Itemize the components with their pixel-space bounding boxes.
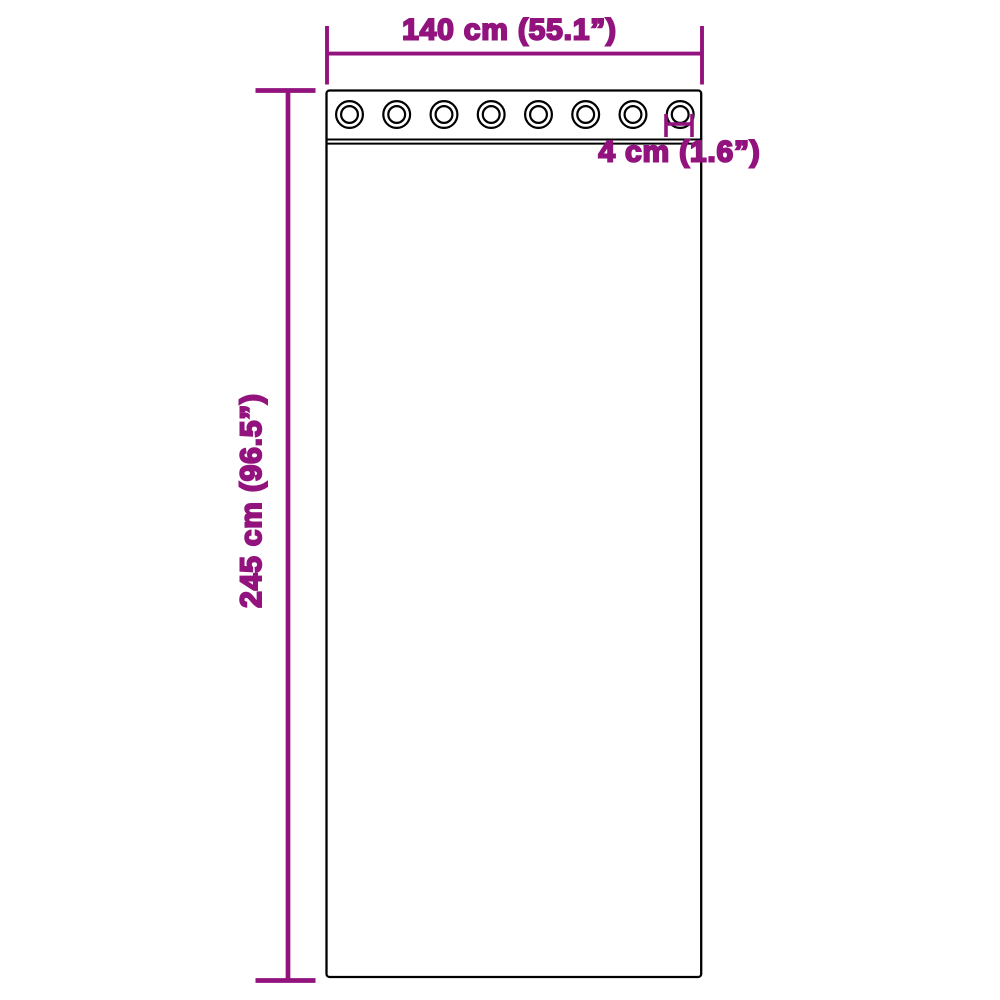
- svg-text:140 cm (55.1”): 140 cm (55.1”): [402, 13, 617, 46]
- svg-text:245 cm (96.5”): 245 cm (96.5”): [235, 393, 268, 608]
- svg-text:4 cm (1.6”): 4 cm (1.6”): [598, 135, 760, 168]
